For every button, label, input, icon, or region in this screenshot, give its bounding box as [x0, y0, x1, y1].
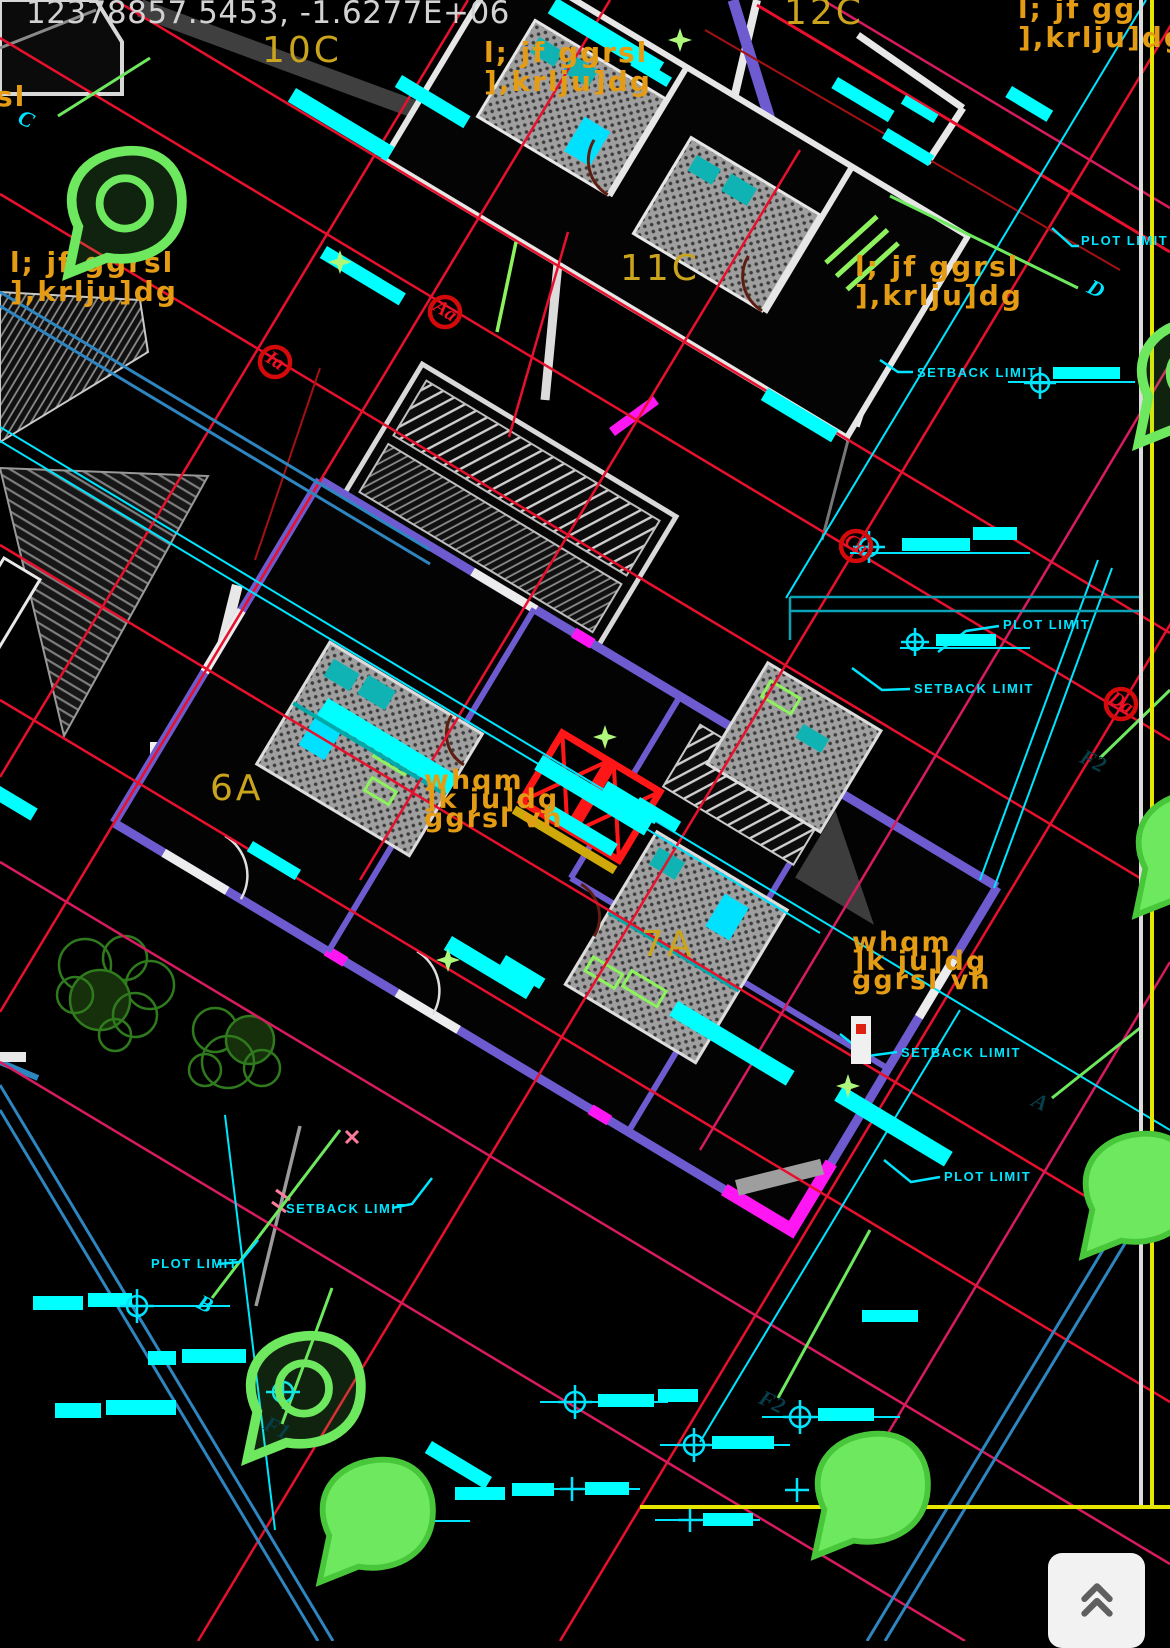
- drawing-linework: [0, 0, 1170, 1641]
- building-top-strip: [384, 0, 968, 438]
- tree-symbols: [57, 936, 280, 1088]
- chevron-double-up-icon: [1074, 1578, 1120, 1624]
- scroll-to-top-button[interactable]: [1048, 1553, 1145, 1648]
- cad-viewport[interactable]: 12378857.5453, -1.6277E+06 10C12C11C6A7A…: [0, 0, 1170, 1641]
- pink-cross-marks: [346, 1131, 358, 1143]
- column-marker: [851, 1016, 871, 1064]
- coordinate-readout: 12378857.5453, -1.6277E+06: [26, 0, 510, 31]
